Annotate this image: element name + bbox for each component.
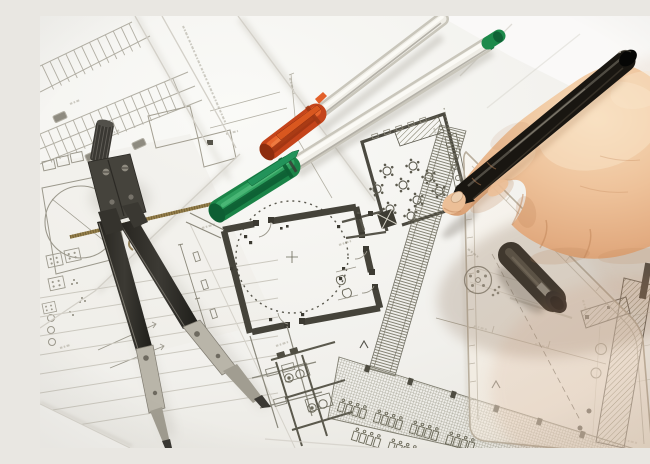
architectural-drafting-photo [40,16,650,448]
photo-canvas [40,16,650,448]
vignette [40,16,650,448]
